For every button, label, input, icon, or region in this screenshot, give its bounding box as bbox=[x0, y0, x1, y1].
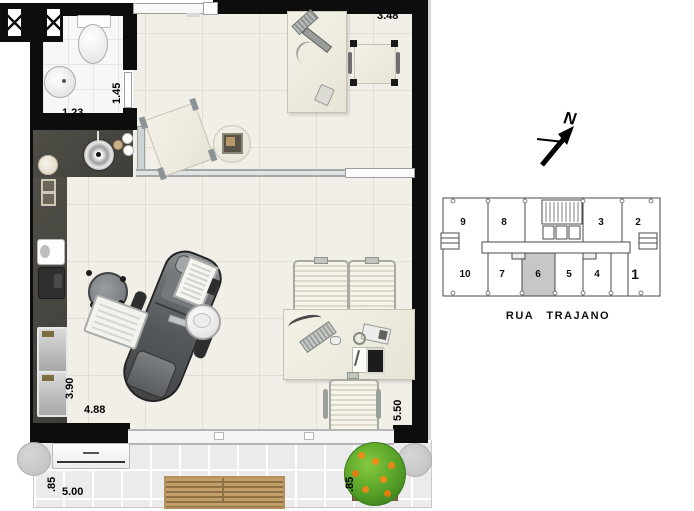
entry-step bbox=[186, 13, 200, 17]
reception-chair-knob bbox=[391, 79, 398, 86]
dimension-room-height: 3.90 bbox=[64, 378, 76, 399]
floorplan-page: 3.48 1.45 1.23 3.90 4.88 5.50 .85 5.00 .… bbox=[0, 0, 694, 511]
consult-office-chair bbox=[323, 375, 381, 435]
dimension-top-width: 3.48 bbox=[377, 10, 398, 22]
plant-fruits bbox=[358, 452, 365, 459]
dimension-bath-width: 1.23 bbox=[62, 107, 83, 119]
bench-divider bbox=[222, 478, 224, 503]
bench bbox=[164, 476, 285, 509]
consult-mouse bbox=[330, 336, 341, 345]
toilet-bowl bbox=[78, 24, 108, 64]
plant bbox=[344, 442, 406, 506]
dimension-balcony-width: 5.00 bbox=[62, 486, 83, 498]
consult-chair-tab bbox=[347, 372, 359, 379]
wall-bath-right-lower bbox=[123, 108, 137, 130]
entry-door bbox=[203, 2, 218, 15]
keyplan-unit-label: 9 bbox=[460, 217, 466, 228]
partition-sliding-door bbox=[345, 168, 415, 178]
dimension-balcony-depth-right: .85 bbox=[344, 477, 356, 492]
keyplan-unit-label: 4 bbox=[594, 269, 600, 280]
reception-chair-knob bbox=[350, 79, 357, 86]
sterilizer-display bbox=[42, 375, 54, 381]
equipment-cart-slats bbox=[91, 302, 140, 343]
counter-jar bbox=[123, 145, 134, 156]
ac-condenser bbox=[52, 443, 130, 469]
north-arrow-icon: N bbox=[520, 98, 595, 173]
counter-sink-drain bbox=[96, 152, 101, 157]
reception-chair-arm bbox=[396, 52, 400, 74]
wall-box bbox=[41, 179, 56, 193]
guest-chair bbox=[348, 260, 396, 316]
phone-keypad bbox=[378, 330, 388, 340]
dimension-room-width: 4.88 bbox=[84, 404, 105, 416]
delivery-unit-slats bbox=[181, 263, 212, 300]
guest-chair-tab bbox=[365, 257, 379, 264]
phone-cord bbox=[353, 332, 366, 345]
column bbox=[17, 442, 51, 476]
keyplan-unit-label: 3 bbox=[598, 217, 604, 228]
guest-chair-tab bbox=[314, 257, 328, 264]
wall-bottom-left bbox=[30, 423, 130, 443]
consult-chair-arm bbox=[323, 389, 328, 419]
keyplan-unit-label: 7 bbox=[499, 269, 505, 280]
dimension-right-height: 5.50 bbox=[392, 400, 404, 421]
dimension-bath-height: 1.45 bbox=[111, 83, 123, 104]
reception-chair-arm bbox=[348, 52, 352, 74]
ac-handle bbox=[83, 452, 99, 454]
reception-chair-seat bbox=[354, 44, 396, 84]
keyplan-unit-label: 6 bbox=[535, 269, 541, 280]
stool-caster bbox=[86, 270, 92, 276]
glass-door-mullion bbox=[304, 432, 314, 440]
keyplan-drawing: 9 8 3 2 10 7 6 5 4 1 bbox=[438, 190, 678, 302]
reception-chair bbox=[350, 40, 398, 86]
ac-vent-line bbox=[57, 461, 125, 463]
street-label: RUA TRAJANO bbox=[438, 310, 678, 322]
side-table-picture bbox=[226, 137, 235, 146]
keyplan-unit-label: 5 bbox=[566, 269, 572, 280]
glass-door-mullion bbox=[214, 432, 224, 440]
keyplan-unit-label: 8 bbox=[501, 217, 507, 228]
consult-chair-arm bbox=[376, 389, 381, 419]
reception-chair-knob bbox=[350, 40, 357, 47]
north-label: N bbox=[562, 108, 578, 129]
operating-light-lens bbox=[193, 313, 211, 328]
sink-drain bbox=[62, 79, 66, 83]
stool-caster bbox=[120, 276, 126, 282]
bathroom-door bbox=[124, 72, 132, 108]
dimension-balcony-depth-left: .85 bbox=[46, 477, 58, 492]
guest-chair bbox=[293, 260, 349, 316]
counter-canister bbox=[38, 155, 58, 175]
counter-faucet bbox=[97, 131, 99, 141]
sterilizer-display bbox=[42, 331, 54, 337]
bathroom-sink bbox=[44, 66, 76, 98]
counter-jar bbox=[113, 140, 123, 150]
consult-chair-seat bbox=[329, 379, 379, 435]
counter-jar bbox=[122, 133, 133, 144]
tablet bbox=[366, 348, 385, 374]
shaft-hatch-icon bbox=[46, 8, 61, 37]
shaft-hatch-icon bbox=[7, 8, 22, 37]
reception-chair-knob bbox=[391, 40, 398, 47]
keyplan-unit-label-1: 1 bbox=[631, 266, 639, 282]
keyplan-unit-label: 10 bbox=[459, 269, 471, 280]
wall-right-outer-line bbox=[428, 0, 431, 440]
balcony-glass-doors bbox=[128, 429, 394, 445]
keyplan-unit-label: 2 bbox=[635, 217, 641, 228]
towel-dispenser-roll bbox=[40, 245, 50, 258]
waste-bin-lid bbox=[54, 274, 62, 288]
wall-bottom-right bbox=[393, 425, 428, 443]
wall-box bbox=[41, 192, 56, 206]
